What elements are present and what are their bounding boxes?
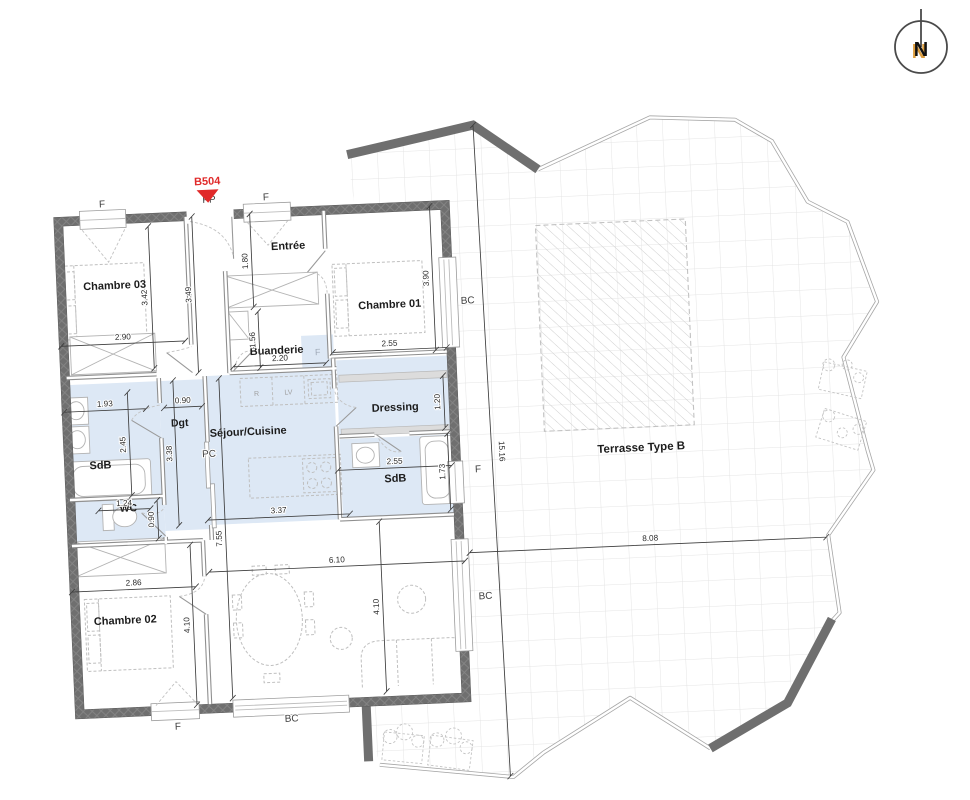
dimension-label: 7.55 [214,530,224,547]
dimension-label: 8.08 [642,533,659,543]
fridge-label: R [254,391,259,398]
dimension-label: 0.90 [175,396,192,406]
room-label-dressing: Dressing [371,401,419,415]
unit-marker: B504 [194,175,222,203]
dimension-label: 1.73 [438,463,448,480]
dimension-label: 0.90 [147,511,157,528]
dimension-label: 1.80 [240,253,250,270]
dimension-label: 1.56 [248,331,258,348]
opening-label-bc: BC [460,295,474,307]
opening-label-bc: BC [285,713,299,725]
dimension-label: 3.90 [421,270,431,287]
opening-label-pc: PC [202,449,216,461]
wardrobe [225,272,318,308]
hatched-area [535,219,694,431]
dimension-label: 4.10 [182,616,192,633]
room-label-entree: Entrée [271,240,306,253]
dimension-label: 2.55 [386,457,403,467]
opening-label-f: F [99,199,106,210]
room-label-sdb2: SdB [384,472,407,485]
dimension-label: 1.93 [97,399,114,409]
dimension-label: 15.16 [497,441,507,462]
shaft-label: F [315,347,321,357]
opening-label-bc: BC [478,591,492,603]
north-label: N [914,39,928,61]
dimension-label: 2.55 [381,339,398,349]
wardrobe [70,333,157,375]
dimension-label: 4.10 [372,598,382,615]
closet [228,311,249,340]
terrace-wall-stub [366,703,369,761]
room-label-sdb1: SdB [89,459,112,472]
dimension-label: 1.20 [433,393,443,410]
dimension-label: 3.49 [184,286,194,303]
opening-label-f: F [263,192,270,203]
unit-marker-label: B504 [194,175,222,188]
opening-label-f: F [475,464,482,475]
dimension-label: 2.86 [125,578,142,588]
room-label-dgt: Dgt [171,417,190,430]
north-arrow: N N [895,9,947,73]
dimension-label: 2.20 [272,353,289,363]
dimension-label: 2.45 [118,436,128,453]
dimension-label: 2.90 [115,332,132,342]
dimension-label: 3.42 [140,289,150,306]
opening-label-f: F [175,721,182,732]
dimension-label: 1.24 [116,498,133,508]
dimension-label: 6.10 [329,555,346,565]
floor-plan-svg: Terrasse Type B [0,0,970,800]
dimension-label: 3.37 [270,506,287,516]
dishwasher-label: LV [284,389,293,396]
dimension-label: 3.38 [165,445,175,462]
floor-plan-page: Terrasse Type B [0,0,970,800]
washbasin [352,443,380,468]
